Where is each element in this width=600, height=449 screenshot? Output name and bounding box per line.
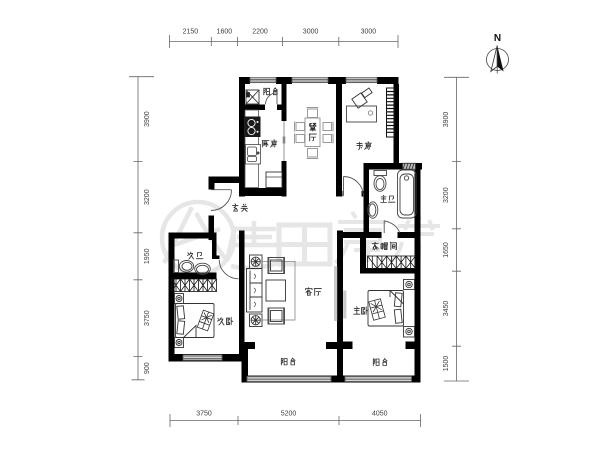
svg-text:3900: 3900 [144, 111, 151, 127]
svg-text:3750: 3750 [144, 310, 151, 326]
svg-text:1600: 1600 [217, 29, 233, 36]
svg-text:2200: 2200 [252, 29, 268, 36]
svg-text:3000: 3000 [361, 29, 377, 36]
svg-text:3450: 3450 [443, 301, 450, 317]
svg-text:5200: 5200 [281, 411, 297, 418]
svg-text:3200: 3200 [443, 187, 450, 203]
svg-text:3900: 3900 [443, 112, 450, 128]
svg-text:1950: 1950 [144, 248, 151, 264]
svg-text:3000: 3000 [303, 29, 319, 36]
svg-text:4050: 4050 [372, 411, 388, 418]
svg-text:1650: 1650 [443, 242, 450, 258]
svg-text:N: N [494, 33, 501, 44]
svg-text:3750: 3750 [196, 411, 212, 418]
svg-text:900: 900 [144, 362, 151, 374]
svg-text:1500: 1500 [443, 356, 450, 372]
svg-text:3200: 3200 [144, 189, 151, 205]
svg-text:2150: 2150 [183, 29, 199, 36]
